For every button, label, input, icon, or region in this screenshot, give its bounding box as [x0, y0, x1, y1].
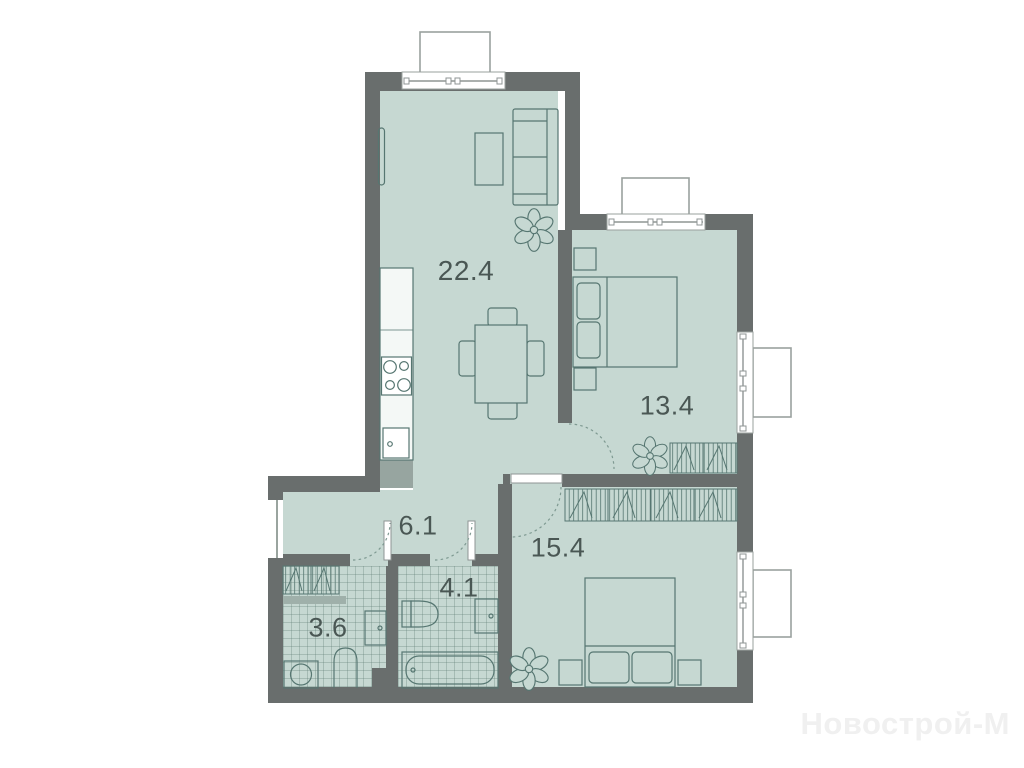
watermark: Новострой-М	[801, 706, 1011, 742]
nightstand	[574, 248, 596, 270]
dining-table	[459, 308, 544, 419]
plan-symbols	[0, 0, 1024, 768]
washing-machine	[284, 661, 318, 688]
room-label-bathroom: 4.1	[439, 573, 478, 604]
wardrobe-bedroom1	[670, 443, 737, 473]
window-living-top	[402, 72, 505, 89]
door-leaf-bedroom2	[511, 474, 562, 483]
room-label-hallway: 6.1	[398, 511, 437, 542]
door-arc-bathroom	[435, 523, 472, 560]
tv	[379, 128, 385, 185]
wardrobe-wc	[283, 566, 339, 594]
door-arc-bedroom2	[511, 487, 561, 537]
sink-wc	[365, 611, 386, 645]
tv-stand	[475, 133, 503, 185]
ac-basket-bedroom1	[753, 348, 791, 417]
bed-bedroom2	[585, 578, 675, 687]
window-bedroom1-right	[737, 332, 753, 433]
sofa	[513, 109, 558, 205]
room-label-bedroom1: 13.4	[640, 391, 695, 422]
nightstand	[559, 660, 582, 685]
floor-plan: 22.4 13.4 6.1 15.4 4.1 3.6 Новострой-М	[0, 0, 1024, 768]
bed-bedroom1	[573, 277, 677, 367]
door-arc-bedroom1	[569, 424, 614, 469]
window-bedroom2-right	[737, 552, 753, 650]
nightstand	[678, 660, 701, 685]
window-bedroom1-top	[607, 214, 705, 230]
stove	[382, 357, 412, 395]
kitchen-sink	[383, 428, 409, 458]
toilet-bathroom	[402, 601, 438, 627]
wardrobe-bedroom2	[565, 489, 737, 521]
balcony-bedroom1	[622, 178, 689, 215]
entrance-door	[268, 500, 283, 558]
plant-bedroom1	[631, 437, 670, 475]
balcony-living	[420, 32, 490, 73]
sink-bathroom	[475, 599, 498, 633]
door-leaf-wc	[384, 521, 391, 560]
nightstand	[574, 368, 596, 390]
room-label-living: 22.4	[438, 255, 495, 287]
plant-living	[513, 209, 556, 252]
room-label-wc: 3.6	[308, 613, 347, 644]
plant-bedroom2	[508, 648, 551, 691]
door-leaf-bathroom	[468, 521, 475, 560]
bathtub	[402, 652, 498, 688]
toilet-wc	[334, 648, 357, 688]
room-label-bedroom2: 15.4	[531, 533, 586, 564]
ac-basket-bedroom2	[753, 570, 791, 637]
